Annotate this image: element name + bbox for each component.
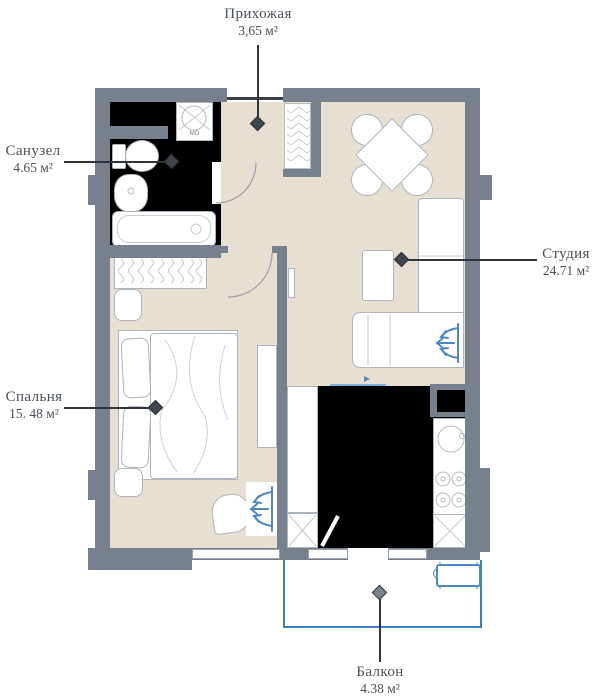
balcony-leader bbox=[379, 599, 381, 662]
kitchen-counter-left bbox=[287, 386, 318, 513]
studio-area: 24.71 м² bbox=[532, 263, 600, 279]
top-wall-right bbox=[283, 88, 480, 102]
right-wall bbox=[465, 88, 480, 548]
studio-name: Студия bbox=[532, 246, 600, 263]
kitchen-window-right bbox=[388, 549, 427, 559]
toilet-tank bbox=[112, 144, 126, 169]
coffee-table bbox=[362, 250, 394, 301]
bed-pillow bbox=[120, 405, 151, 468]
bathroom-label: Санузел 4.65 м² bbox=[0, 143, 66, 176]
balcony-area: 4.38 м² bbox=[330, 681, 430, 697]
hallway-name: Прихожая bbox=[198, 6, 318, 23]
bathroom-name: Санузел bbox=[0, 143, 66, 160]
bedroom-leader bbox=[64, 407, 152, 409]
kitchen-window-left bbox=[308, 549, 348, 559]
entrance-door-line bbox=[227, 97, 283, 100]
bedroom-name: Спальня bbox=[0, 389, 68, 406]
sofa-back-section bbox=[418, 198, 464, 314]
kitchen-cabinet-right bbox=[433, 514, 467, 548]
bedroom-wardrobe bbox=[114, 254, 207, 289]
left-wall bbox=[95, 88, 110, 548]
bathroom-leader bbox=[64, 161, 168, 163]
bathtub-inner bbox=[117, 215, 211, 243]
balcony-label: Балкон 4.38 м² bbox=[330, 664, 430, 697]
left-pilaster-bottom bbox=[88, 470, 95, 500]
bathroom-bottom-wall bbox=[95, 245, 221, 258]
bed-duvet bbox=[150, 333, 238, 479]
bedroom-label: Спальня 15. 48 м² bbox=[0, 389, 68, 422]
bedroom-right-wall bbox=[277, 247, 287, 548]
bathroom-sink bbox=[114, 174, 148, 212]
bedroom-window bbox=[192, 549, 280, 559]
hallway-label: Прихожая 3,65 м² bbox=[198, 6, 318, 39]
floorplan-canvas: { "rooms": { "hallway": { "name": "Прихо… bbox=[0, 0, 600, 700]
kitchen-cabinet-left bbox=[287, 513, 318, 548]
closet-wall-right bbox=[311, 102, 321, 177]
balcony-name: Балкон bbox=[330, 664, 430, 681]
bedroom-mirror bbox=[288, 268, 295, 298]
right-pilaster-bottom bbox=[480, 468, 490, 552]
bedroom-area: 15. 48 м² bbox=[0, 406, 68, 422]
toilet-bowl bbox=[125, 140, 159, 172]
sofa-chaise-section bbox=[352, 312, 464, 368]
studio-leader bbox=[407, 259, 537, 261]
bathroom-area: 4.65 м² bbox=[0, 160, 66, 176]
shaft-divider-wall bbox=[110, 126, 168, 139]
vent-backing bbox=[246, 482, 279, 536]
hall-closet bbox=[284, 103, 311, 169]
bed-pillow bbox=[120, 337, 151, 398]
hallway-area: 3,65 м² bbox=[198, 23, 318, 39]
right-pilaster-top bbox=[480, 175, 492, 200]
bedroom-top-wall-left bbox=[221, 246, 228, 253]
studio-label: Студия 24.71 м² bbox=[532, 246, 600, 279]
washing-machine-label: МО bbox=[176, 131, 213, 137]
bedroom-dresser bbox=[257, 345, 277, 448]
ac-unit bbox=[436, 564, 481, 587]
balcony-door-opening bbox=[348, 548, 388, 560]
sliding-door-line bbox=[330, 384, 386, 386]
nightstand bbox=[114, 468, 143, 497]
kitchen-shaft bbox=[437, 390, 467, 412]
closet-wall-bottom bbox=[283, 169, 321, 177]
hallway-leader bbox=[257, 45, 259, 120]
top-wall-left bbox=[95, 88, 227, 102]
bathroom-door-opening bbox=[212, 162, 221, 204]
left-pilaster-top bbox=[88, 175, 95, 205]
nightstand bbox=[114, 289, 142, 321]
bottom-wall-left-chunk bbox=[88, 548, 192, 570]
